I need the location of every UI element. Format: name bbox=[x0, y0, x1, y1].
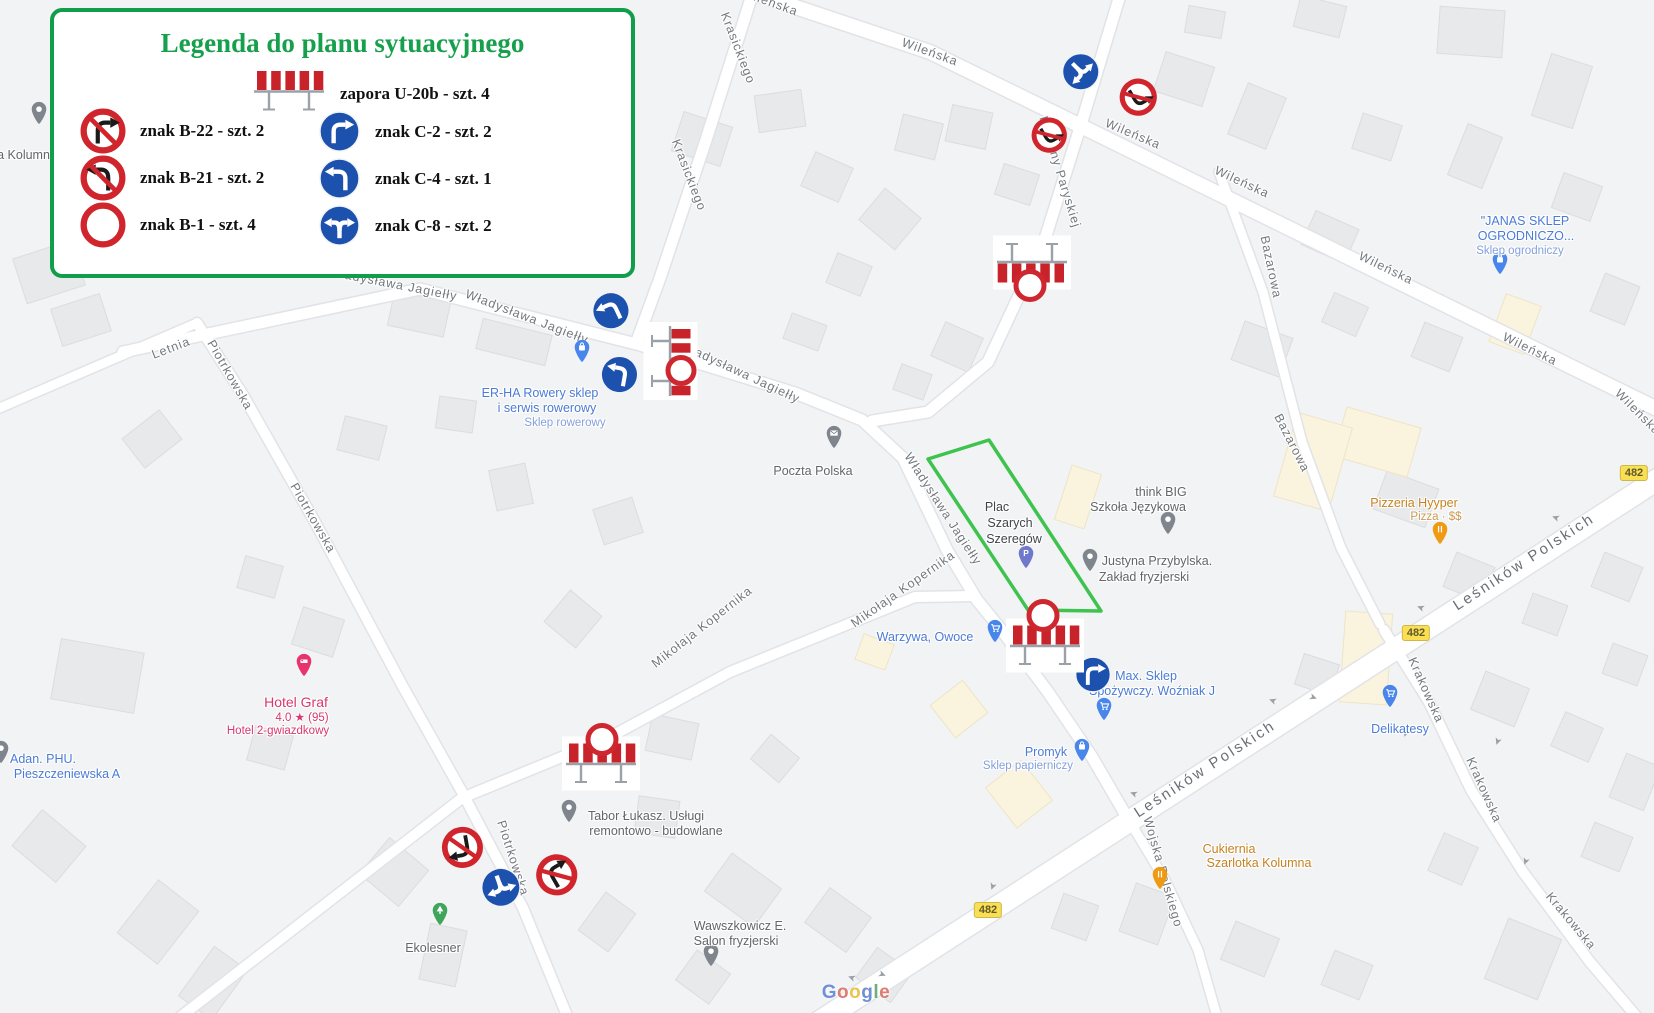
poi-label-promyk[interactable]: Sklep papierniczy bbox=[983, 760, 1073, 772]
svg-text:P: P bbox=[1023, 548, 1029, 558]
tree-pin-icon[interactable] bbox=[431, 901, 450, 931]
legend-title: Legenda do planu sytuacyjnego bbox=[54, 28, 631, 59]
poi-label-er-ha-rowery[interactable]: Sklep rowerowy bbox=[524, 417, 605, 429]
sign-b1-circle-icon bbox=[663, 353, 699, 394]
sign-b1-icon bbox=[80, 202, 126, 248]
traffic-sign-b22-icon bbox=[437, 818, 487, 872]
sign-b1-circle-icon bbox=[583, 721, 621, 764]
poi-label-tabor-lukasz[interactable]: remontowo - budowlane bbox=[589, 824, 722, 838]
poi-label-janas-sklep[interactable]: "JANAS SKLEP bbox=[1481, 214, 1570, 228]
poi-label-think-big[interactable]: Szkoła Językowa bbox=[1090, 500, 1186, 514]
cart-pin-icon[interactable] bbox=[986, 618, 1005, 648]
map-canvas[interactable]: Legenda do planu sytuacyjnego zapora U-2… bbox=[0, 0, 1654, 1013]
legend-label-b22: znak B-22 - szt. 2 bbox=[140, 121, 264, 141]
hotel-pin-icon[interactable] bbox=[295, 652, 314, 682]
sign-b1-circle-icon bbox=[1011, 267, 1049, 310]
poi-label-think-big[interactable]: think BIG bbox=[1135, 485, 1186, 499]
sign-c2-icon bbox=[318, 110, 361, 153]
poi-label-plac-szarych-szeregow[interactable]: Szeregów bbox=[986, 532, 1042, 546]
poi-label-cukiernia[interactable]: Szarlotka Kolumna bbox=[1207, 856, 1312, 870]
poi-label-justyna-przybylska[interactable]: Zakład fryzjerski bbox=[1099, 570, 1189, 584]
poi-label-pizzeria-hyyper[interactable]: Pizza · $$ bbox=[1410, 511, 1461, 523]
poi-label-plac-szarych-szeregow[interactable]: Plac bbox=[985, 500, 1009, 514]
cart-pin-icon[interactable] bbox=[1381, 683, 1400, 713]
legend-label-c4: znak C-4 - szt. 1 bbox=[375, 169, 492, 189]
poi-label-adan-phu[interactable]: Pieszczeniewska A bbox=[14, 767, 120, 781]
poi-label-er-ha-rowery[interactable]: i serwis rowerowy bbox=[498, 401, 597, 415]
legend-row-b22: znak B-22 - szt. 2 bbox=[80, 108, 264, 154]
cart-pin-icon[interactable] bbox=[1095, 696, 1114, 726]
poi-label-janas-sklep[interactable]: OGRODNICZO... bbox=[1478, 229, 1575, 243]
bag-pin-icon[interactable] bbox=[573, 338, 592, 368]
sign-b1-circle-icon bbox=[1024, 597, 1062, 640]
poi-label-tabor-lukasz[interactable]: Tabor Łukasz. Usługi bbox=[588, 809, 704, 823]
legend-label-c8: znak C-8 - szt. 2 bbox=[375, 216, 492, 236]
sign-b21-icon bbox=[80, 155, 126, 201]
gray-pin-icon[interactable] bbox=[560, 798, 579, 828]
poi-label-pizzeria-hyyper[interactable]: Pizzeria Hyyper bbox=[1370, 496, 1458, 510]
poi-label-plac-szarych-szeregow[interactable]: Szarych bbox=[987, 516, 1032, 530]
legend-label-c2: znak C-2 - szt. 2 bbox=[375, 122, 492, 142]
poi-label-warzywa-owoce[interactable]: Warzywa, Owoce bbox=[877, 630, 974, 644]
food-pin-icon[interactable] bbox=[1151, 865, 1170, 895]
poi-label-kolumna[interactable]: a Kolumna bbox=[0, 148, 57, 162]
legend-label-b1: znak B-1 - szt. 4 bbox=[140, 215, 256, 235]
poi-label-ekolesner[interactable]: Ekolesner bbox=[405, 941, 461, 955]
sign-b22-icon bbox=[80, 108, 126, 154]
poi-label-hotel-graf[interactable]: Hotel 2-gwiazdkowy bbox=[227, 725, 329, 737]
food-pin-icon[interactable] bbox=[1431, 520, 1450, 550]
legend-row-c4: znak C-4 - szt. 1 bbox=[318, 157, 492, 200]
sign-c8-icon bbox=[318, 204, 361, 247]
poi-label-promyk[interactable]: Promyk bbox=[1025, 745, 1067, 759]
env-pin-icon[interactable] bbox=[825, 424, 844, 454]
poi-label-wawszkowicz[interactable]: Wawszkowicz E. bbox=[694, 919, 787, 933]
dot-pin-icon[interactable] bbox=[0, 739, 11, 769]
park-pin-icon[interactable]: P bbox=[1017, 544, 1036, 574]
route-badge: 482 bbox=[974, 902, 1002, 918]
legend-row-c8: znak C-8 - szt. 2 bbox=[318, 204, 492, 247]
sign-c4-icon bbox=[318, 157, 361, 200]
legend-row-c2: znak C-2 - szt. 2 bbox=[318, 110, 492, 153]
poi-label-janas-sklep[interactable]: Sklep ogrodniczy bbox=[1476, 245, 1564, 257]
gray-pin-icon[interactable] bbox=[1159, 510, 1178, 540]
poi-label-wawszkowicz[interactable]: Salon fryzjerski bbox=[694, 934, 779, 948]
poi-label-justyna-przybylska[interactable]: Justyna Przybylska. bbox=[1102, 554, 1212, 568]
legend-row-b1: znak B-1 - szt. 4 bbox=[80, 202, 256, 248]
legend-row-b21: znak B-21 - szt. 2 bbox=[80, 155, 264, 201]
route-badge: 482 bbox=[1620, 465, 1648, 481]
gray-pin-icon[interactable] bbox=[1081, 547, 1100, 577]
legend-barrier-label: zapora U-20b - szt. 4 bbox=[340, 84, 490, 104]
route-badge: 482 bbox=[1402, 625, 1430, 641]
legend-panel: Legenda do planu sytuacyjnego zapora U-2… bbox=[50, 8, 635, 278]
google-logo[interactable]: Google bbox=[822, 982, 890, 1004]
poi-label-hotel-graf[interactable]: Hotel Graf bbox=[264, 694, 328, 710]
poi-label-hotel-graf[interactable]: 4.0 ★ (95) bbox=[275, 710, 328, 724]
poi-label-adan-phu[interactable]: Adan. PHU. bbox=[10, 752, 76, 766]
bag-pin-icon[interactable] bbox=[1073, 737, 1092, 767]
legend-label-b21: znak B-21 - szt. 2 bbox=[140, 168, 264, 188]
poi-label-er-ha-rowery[interactable]: ER-HA Rowery sklep bbox=[482, 386, 599, 400]
traffic-sign-c4-icon bbox=[595, 351, 642, 402]
poi-label-max-sklep[interactable]: Max. Sklep bbox=[1115, 669, 1177, 683]
gray-pin-icon[interactable] bbox=[30, 100, 49, 130]
poi-label-cukiernia[interactable]: Cukiernia bbox=[1203, 842, 1256, 856]
poi-label-delikatesy[interactable]: Delikatesy bbox=[1371, 722, 1429, 736]
poi-label-poczta-polska[interactable]: Poczta Polska bbox=[773, 464, 852, 478]
